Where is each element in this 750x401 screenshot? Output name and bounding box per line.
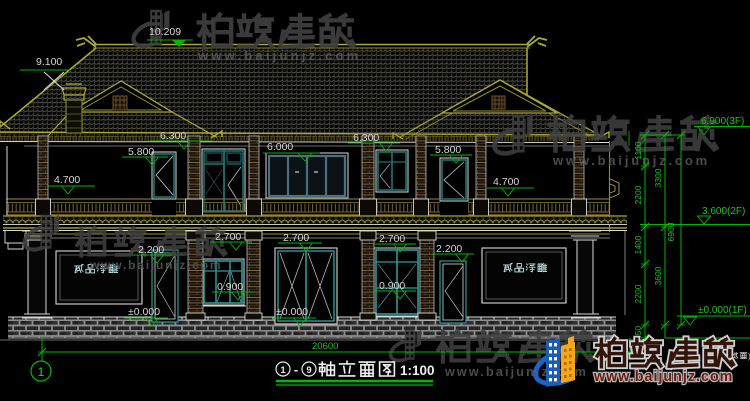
svg-text:1: 1: [280, 365, 286, 376]
svg-text:1: 1: [38, 365, 45, 379]
svg-text:4.700: 4.700: [54, 174, 80, 186]
svg-text:5.800: 5.800: [128, 146, 154, 158]
svg-text:6.300: 6.300: [353, 132, 379, 144]
svg-text:2.200: 2.200: [138, 244, 164, 256]
svg-text:5.800: 5.800: [435, 144, 461, 156]
svg-text:1400: 1400: [633, 235, 643, 254]
svg-text:2200: 2200: [633, 284, 643, 303]
svg-text:4.700: 4.700: [493, 176, 519, 188]
svg-text:6.000: 6.000: [267, 141, 293, 153]
svg-text:1:100: 1:100: [400, 363, 435, 378]
svg-text:2.200: 2.200: [436, 243, 462, 255]
svg-text:2.700: 2.700: [379, 233, 405, 245]
svg-text:0.900: 0.900: [217, 281, 243, 293]
svg-text:2.700: 2.700: [215, 231, 241, 243]
svg-text:±0.000(1F): ±0.000(1F): [698, 305, 747, 316]
svg-text:±0.000: ±0.000: [128, 306, 160, 318]
svg-text:10.209: 10.209: [149, 26, 181, 38]
svg-text:-: -: [294, 362, 298, 377]
svg-text:1100: 1100: [633, 141, 643, 160]
svg-text:www.baijunjz.com: www.baijunjz.com: [89, 258, 222, 272]
svg-text:9.100: 9.100: [36, 56, 62, 68]
svg-text:6900: 6900: [666, 222, 676, 241]
svg-text:3600: 3600: [653, 266, 663, 285]
svg-text:±0.000: ±0.000: [276, 306, 308, 318]
svg-text:6.900(3F): 6.900(3F): [701, 116, 744, 127]
svg-text:www.baijunjz.com: www.baijunjz.com: [593, 369, 733, 385]
svg-text:www.baijunjz.com: www.baijunjz.com: [197, 48, 361, 63]
svg-text:2.700: 2.700: [283, 232, 309, 244]
svg-text:www.baijunjz.com: www.baijunjz.com: [552, 153, 710, 168]
svg-text:6.300: 6.300: [160, 130, 186, 142]
svg-text:2200: 2200: [633, 185, 643, 204]
svg-text:3.600(2F): 3.600(2F): [702, 206, 745, 217]
svg-text:3300: 3300: [653, 168, 663, 187]
svg-text:9: 9: [306, 365, 311, 376]
svg-text:20600: 20600: [312, 341, 338, 352]
svg-text:0.900: 0.900: [379, 280, 405, 292]
